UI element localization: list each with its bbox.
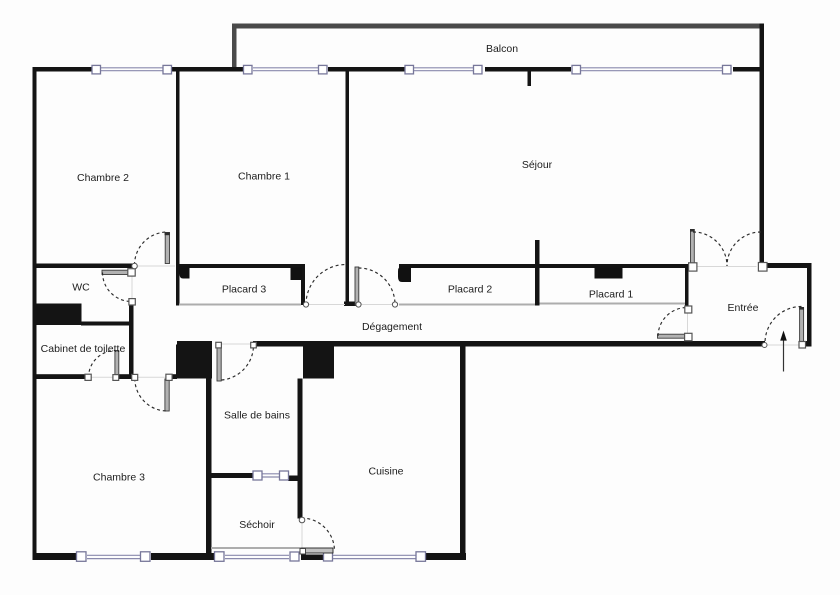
- svg-text:Placard 3: Placard 3: [222, 284, 267, 296]
- svg-text:Placard 2: Placard 2: [448, 284, 493, 296]
- svg-text:Séjour: Séjour: [522, 159, 553, 171]
- svg-text:Balcon: Balcon: [486, 43, 518, 55]
- svg-text:Chambre 2: Chambre 2: [77, 172, 129, 184]
- svg-text:WC: WC: [72, 282, 90, 294]
- svg-text:Séchoir: Séchoir: [239, 519, 275, 531]
- svg-text:Placard 1: Placard 1: [589, 289, 634, 301]
- svg-text:Salle de bains: Salle de bains: [224, 410, 290, 422]
- svg-text:Entrée: Entrée: [728, 302, 759, 314]
- svg-text:Cabinet de toilette: Cabinet de toilette: [41, 343, 126, 355]
- svg-text:Chambre 3: Chambre 3: [93, 472, 145, 484]
- svg-text:Chambre 1: Chambre 1: [238, 171, 290, 183]
- svg-text:Cuisine: Cuisine: [368, 466, 403, 478]
- svg-text:Dégagement: Dégagement: [362, 321, 422, 333]
